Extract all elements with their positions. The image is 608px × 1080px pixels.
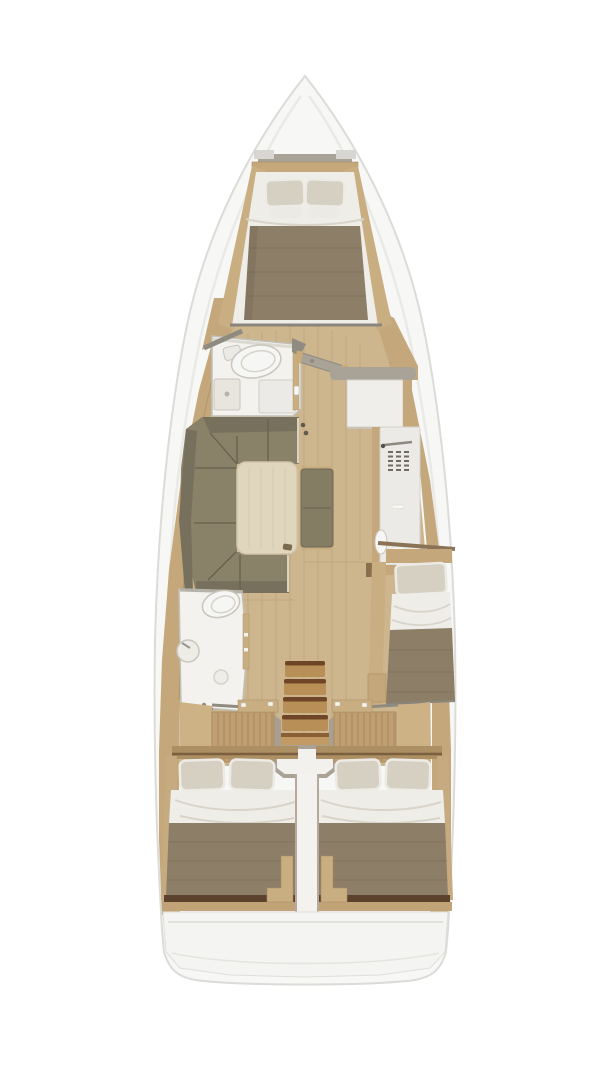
pillow <box>335 759 380 791</box>
table-hinge <box>283 543 293 550</box>
aft-head-sink <box>177 640 199 662</box>
salon-bench <box>301 466 333 550</box>
sofa-corner-fitting <box>304 431 309 436</box>
aft-head-door-handle <box>244 648 248 652</box>
v-berth-blanket <box>244 226 368 320</box>
bow-hull-tab-right <box>336 150 356 159</box>
bed-blanket <box>317 823 448 897</box>
starboard-single-berth <box>368 543 455 706</box>
threshold-handle <box>241 703 246 707</box>
stair-edge <box>282 715 328 720</box>
galley-latch-upper <box>392 505 404 509</box>
pillow <box>306 179 345 206</box>
v-berth-sheet-roll-left <box>270 207 302 218</box>
v-berth-sheet-roll-right <box>308 207 340 218</box>
pillow <box>266 179 305 206</box>
bed-foot-wood <box>162 902 300 911</box>
pillow <box>179 759 224 791</box>
stair-bottom-landing-edge <box>279 733 331 737</box>
bulkhead-strip <box>295 774 319 914</box>
bed-foot-wood <box>314 902 452 911</box>
berth-head-shelf <box>386 549 452 563</box>
stair-edge <box>285 661 325 666</box>
headboard-band-right <box>316 746 442 759</box>
forward-head-door-handle <box>294 386 299 395</box>
pillow <box>229 759 274 791</box>
threshold-handle <box>335 702 340 706</box>
pillow <box>385 759 430 791</box>
chart-cabinet-wood-rim <box>403 380 412 427</box>
threshold-handle <box>268 702 273 706</box>
chart-cabinet-top <box>347 380 403 427</box>
aft-head-door <box>243 614 249 669</box>
salon-table <box>237 462 297 554</box>
berth-pillow <box>395 563 447 596</box>
bed-blanket <box>166 823 297 897</box>
stair-edge <box>284 679 326 684</box>
sofa-corner-fitting <box>301 423 306 428</box>
floor-plan-canvas <box>0 0 608 1080</box>
open-door-knob <box>310 359 314 363</box>
sink-drain <box>225 392 230 397</box>
forward-head-shower-pan <box>259 380 295 413</box>
galley-handle-knob <box>381 444 385 448</box>
berth-blanket <box>386 628 455 704</box>
center-bulkhead-strip <box>295 774 319 914</box>
aft-head-door-handle <box>244 633 248 637</box>
aft-head-bathroom <box>177 586 249 711</box>
aft-head-shower-drain <box>214 670 228 684</box>
chart-gray-rail <box>330 367 416 380</box>
berth-foot-cabinet <box>368 674 386 702</box>
threshold-handle <box>362 703 367 707</box>
stern-platform <box>163 912 448 977</box>
yacht-floor-plan <box>0 0 608 1080</box>
headboard-band-left <box>172 746 298 759</box>
bow-hull-tab-left <box>254 150 274 159</box>
stair-edge <box>283 697 327 702</box>
sofa-backrest-top <box>203 417 299 433</box>
